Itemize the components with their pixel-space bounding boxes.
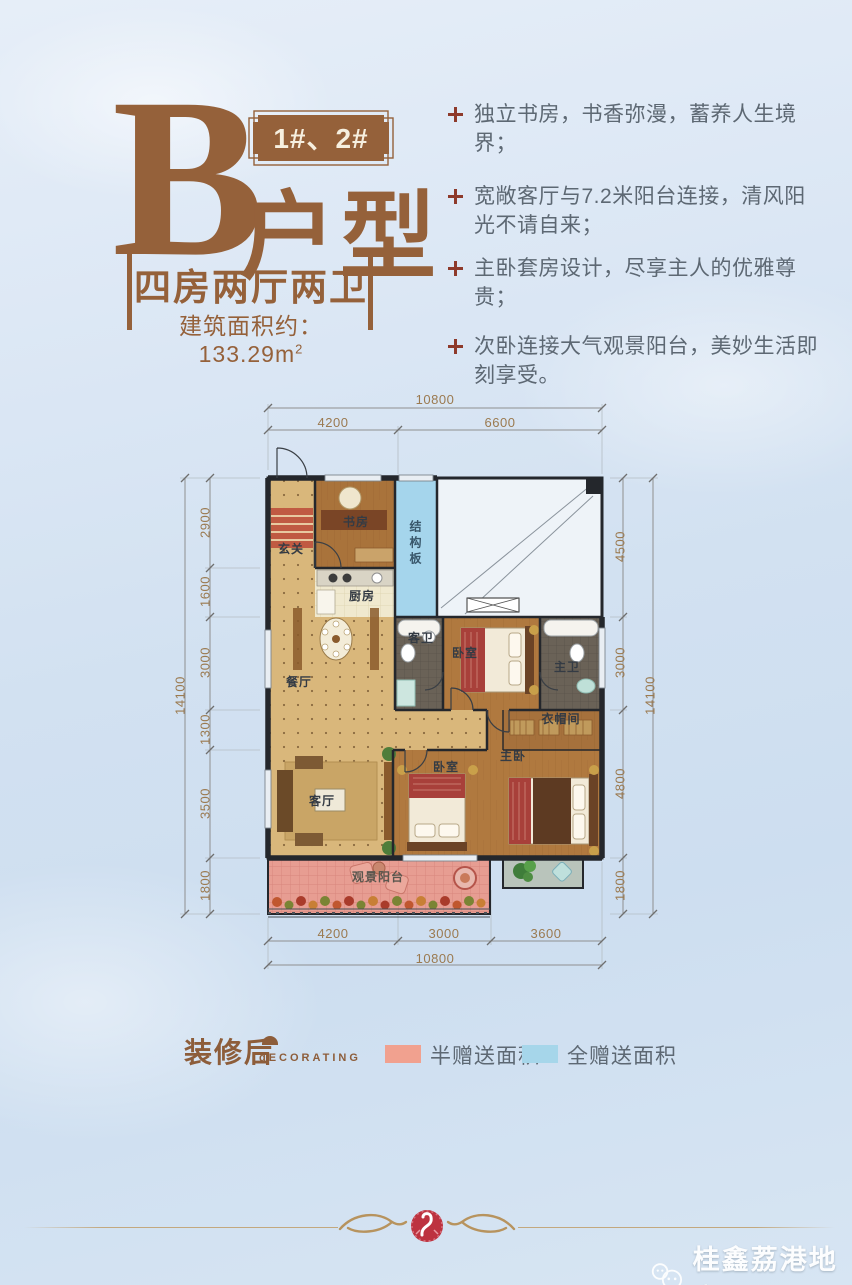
cross-bullet-icon [448,261,463,276]
dim-right-seg-0: 4500 [613,517,628,577]
flourish-right [448,1215,514,1232]
dim-top-right: 6600 [470,415,530,430]
legend-label-full-gift: 全赠送面积 [567,1040,677,1070]
dim-left-seg-5: 1800 [198,856,213,916]
dim-bottom-left: 4200 [303,926,363,941]
dim-left-seg-0: 2900 [198,493,213,553]
dim-left-seg-2: 3000 [198,633,213,693]
dim-left-seg-1: 1600 [198,562,213,622]
feature-item: 主卧套房设计，尽享主人的优雅尊贵； [448,254,820,312]
legend-subtitle: dECORATING [259,1052,361,1064]
room-label-dining: 餐厅 [264,673,334,690]
area-superscript: 2 [295,341,303,356]
room-label-study: 书房 [321,513,391,530]
feature-list: 独立书房，书香弥漫，蓄养人生境界； 宽敞客厅与7.2米阳台连接，清风阳光不请自来… [448,100,820,390]
dim-bottom-total: 10800 [405,951,465,966]
divider-line-right [518,1227,835,1228]
flyer-page: B 1#、2# 户型 四房两厅两卫 建筑面积约：133.29m2 独立书房，书香… [0,0,852,1285]
badge-label: 1#、2# [273,123,368,154]
area-label: 建筑面积约：133.29m2 [131,307,371,368]
dim-right-total: 14100 [643,666,658,726]
room-label-view-balcony: 观景阳台 [343,868,413,885]
legend-swatch-full-gift [522,1045,558,1063]
divider-line-left [24,1227,338,1228]
feature-item: 宽敞客厅与7.2米阳台连接，清风阳光不请自来； [448,182,820,240]
phoenix-emblem [411,1210,443,1242]
room-label-bedroom-middle: 卧室 [430,644,500,661]
chat-bubbles-icon [650,1261,685,1285]
legend-swatch-half-gift [385,1045,421,1063]
cross-bullet-icon [448,339,463,354]
room-label-entry: 玄关 [256,540,326,557]
dim-bottom-right: 3600 [516,926,576,941]
watermark: 桂鑫荔港地产 [650,1238,852,1285]
flourish-left [340,1215,406,1232]
room-label-bedroom-second: 卧室 [411,758,481,775]
dim-right-seg-3: 1800 [613,856,628,916]
cross-bullet-icon [448,189,463,204]
dim-bottom-middle: 3000 [414,926,474,941]
dome-icon [262,1036,278,1045]
dim-left-seg-3: 1300 [198,700,213,760]
room-label-master-bath: 主卫 [532,658,602,675]
cross-bullet-icon [448,107,463,122]
room-label-closet: 衣帽间 [526,710,596,727]
room-label-master-bedroom: 主卧 [478,747,548,764]
watermark-text: 桂鑫荔港地产 [693,1238,852,1285]
legend-title: 装修后 [184,1031,274,1071]
layout-label: 四房两厅两卫 [131,257,371,311]
dim-right-seg-2: 4800 [613,754,628,814]
room-label-structural-slab: 结构板 [407,520,424,568]
dim-left-seg-4: 3500 [198,774,213,834]
building-badge: 1#、2# [248,110,394,166]
footer-ornament [336,1203,518,1253]
feature-item: 独立书房，书香弥漫，蓄养人生境界； [448,100,820,158]
dim-top-total: 10800 [405,392,465,407]
dim-right-seg-1: 3000 [613,633,628,693]
dim-left-total: 14100 [173,666,188,726]
room-label-living: 客厅 [287,792,357,809]
floor-plan-graphic [165,390,685,990]
room-label-kitchen: 厨房 [327,587,397,604]
feature-item: 次卧连接大气观景阳台，美妙生活即刻享受。 [448,332,820,390]
dim-top-left: 4200 [303,415,363,430]
